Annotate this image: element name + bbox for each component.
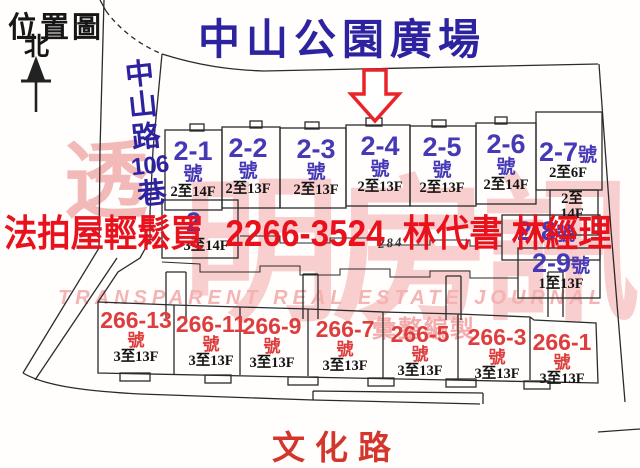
location-map: 透 明房訊 TRANSPARENT REAL ESTATE JOURNAL 彙整… — [0, 0, 640, 468]
unit-label-2-6: 2-6 號 2至14F — [483, 130, 528, 194]
ad-phone: 2266-3524 — [225, 213, 384, 255]
unit-floors: 2至13F — [419, 181, 464, 196]
unit-suffix: 號 — [170, 165, 215, 185]
ad-contacts: 林代書 林經理 — [403, 203, 612, 257]
unit-label-2-5: 2-5 號 2至13F — [419, 133, 464, 197]
unit-label-266-7: 266-7 號 3至13F — [316, 317, 375, 374]
unit-number: 266-9 — [243, 314, 302, 338]
unit-suffix: 號 — [293, 163, 338, 183]
ad-slogan: 法拍屋輕鬆買 — [4, 203, 204, 257]
map-type-title: 位置圖 — [8, 4, 104, 46]
unit-label-2-1: 2-1 號 2至14F — [170, 137, 215, 201]
unit-label-266-3: 266-3 號 3至13F — [468, 325, 527, 382]
unit-floors: 3至13F — [100, 350, 172, 365]
ad-overlay: 法拍屋輕鬆買 2266-3524 林代書 林經理 — [4, 203, 634, 257]
unit-suffix: 號 — [391, 346, 450, 364]
unit-label-266-1: 266-1 號 3至13F — [533, 330, 592, 387]
unit-suffix: 號 — [243, 338, 302, 356]
unit-floors: 3至13F — [533, 372, 592, 387]
north-label: 北 — [24, 27, 49, 63]
unit-label-2-3: 2-3 號 2至13F — [293, 135, 338, 199]
unit-suffix: 號 — [316, 341, 375, 359]
unit-suffix: 號 — [533, 354, 592, 372]
unit-number: 2-5 — [419, 133, 464, 161]
unit-label-266-13: 266-13 號 3至13F — [100, 308, 172, 365]
unit-number: 2-7號 — [539, 138, 597, 166]
unit-number: 266-7 — [316, 317, 375, 341]
unit-label-266-11: 266-11 號 3至13F — [176, 312, 246, 369]
road-char: 山 — [123, 89, 162, 124]
unit-number: 2-6 — [483, 130, 528, 158]
unit-number: 266-11 — [176, 312, 246, 336]
unit-suffix: 號 — [357, 160, 402, 180]
unit-number: 266-1 — [533, 330, 592, 354]
unit-number: 2-4 — [357, 132, 402, 160]
unit-number: 2-3 — [293, 135, 338, 163]
unit-floors: 2至6F — [539, 166, 597, 181]
unit-floors: 3至13F — [243, 356, 302, 371]
unit-floors: 3至13F — [391, 364, 450, 379]
unit-floors: 2至14F — [483, 178, 528, 193]
unit-floors: 2至13F — [357, 180, 402, 195]
unit-suffix: 號 — [176, 336, 246, 354]
road-char: 路 — [127, 120, 166, 155]
unit-label-2-4: 2-4 號 2至13F — [357, 132, 402, 196]
unit-floors: 2至13F — [293, 183, 338, 198]
unit-floors: 3至13F — [468, 367, 527, 382]
unit-suffix: 號 — [225, 162, 270, 182]
unit-number: 266-3 — [468, 325, 527, 349]
unit-label-266-5: 266-5 號 3至13F — [391, 322, 450, 379]
unit-number: 266-5 — [391, 322, 450, 346]
unit-suffix: 號 — [100, 332, 172, 350]
unit-floors: 2至13F — [225, 182, 270, 197]
unit-label-266-9: 266-9 號 3至13F — [243, 314, 302, 371]
unit-number: 2-2 — [225, 134, 270, 162]
unit-number: 2-1 — [170, 137, 215, 165]
unit-floors: 3至13F — [316, 359, 375, 374]
unit-floors: 3至13F — [176, 354, 246, 369]
unit-label-2-2: 2-2 號 2至13F — [225, 134, 270, 198]
unit-suffix: 號 — [483, 158, 528, 178]
unit-floors: 1至13F — [532, 277, 590, 292]
unit-suffix: 號 — [419, 161, 464, 181]
bottom-road-name: 文化路 — [272, 421, 401, 468]
park-name: 中山公園廣場 — [198, 6, 486, 67]
unit-number: 266-13 — [100, 308, 172, 332]
unit-floors: 2至14F — [170, 185, 215, 200]
unit-label-2-7: 2-7號 2至6F — [539, 138, 597, 182]
unit-suffix: 號 — [468, 349, 527, 367]
